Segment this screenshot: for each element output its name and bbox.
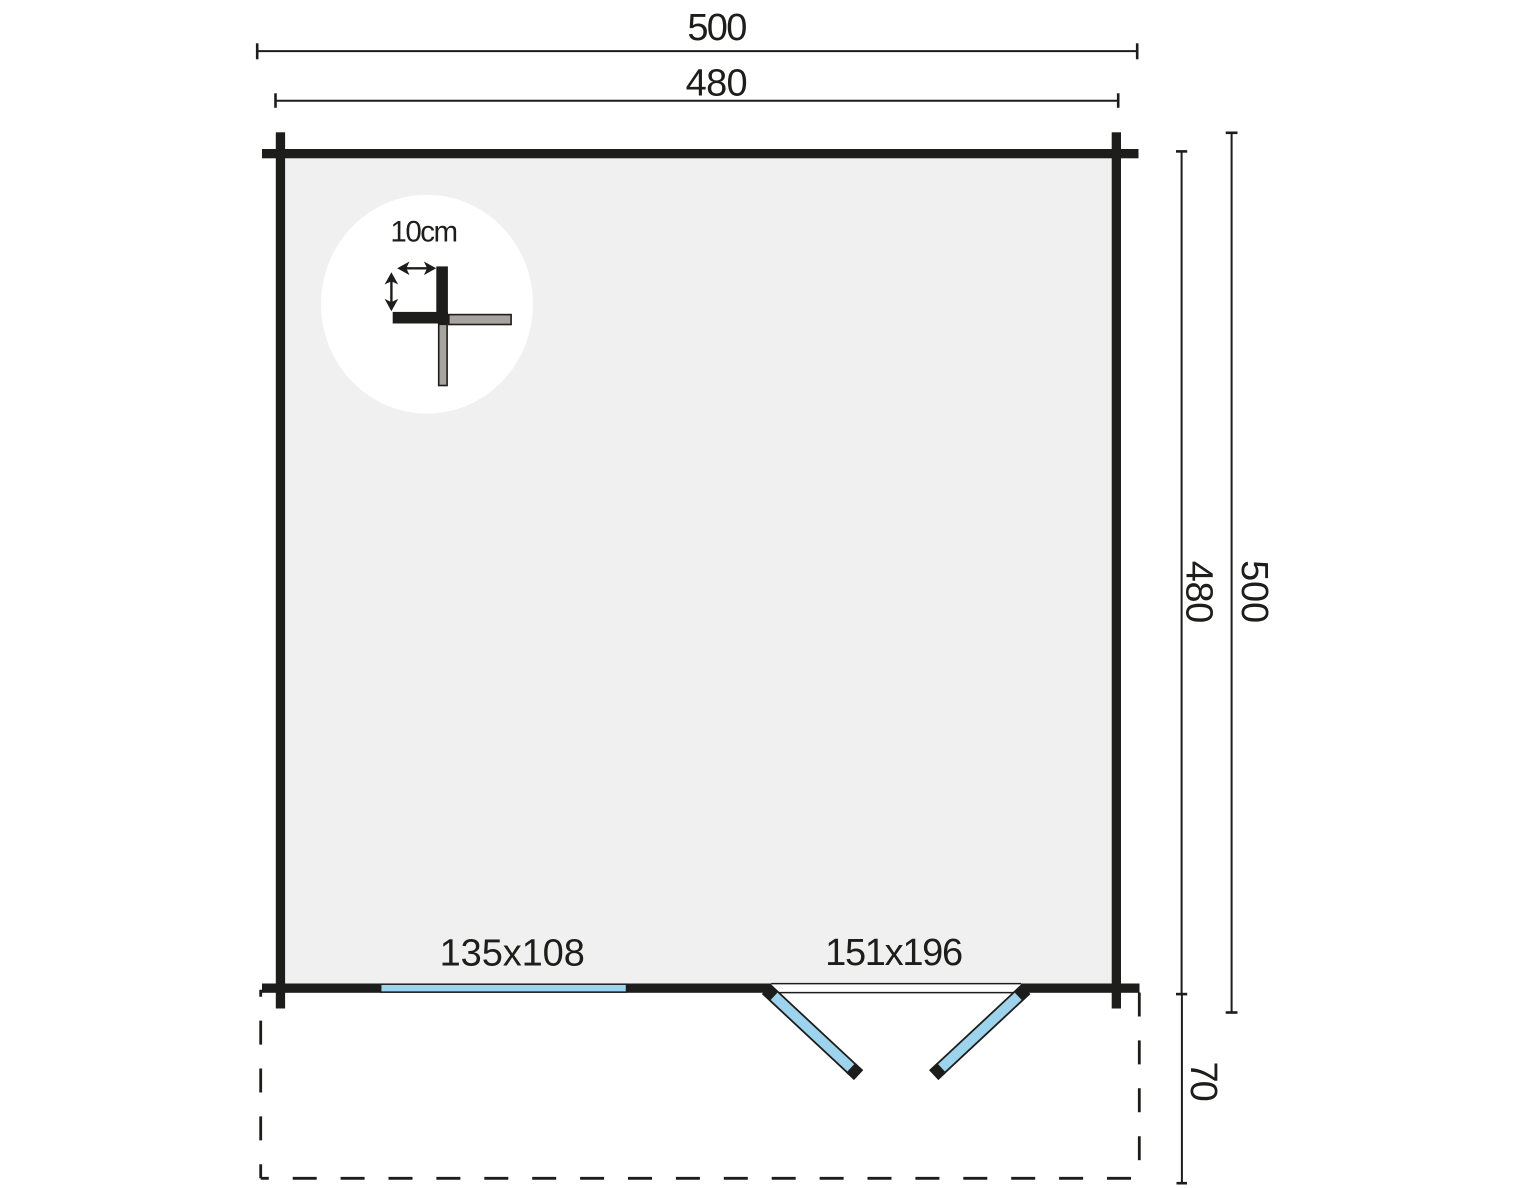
svg-text:135x108: 135x108 [440,933,585,975]
svg-text:151x196: 151x196 [825,932,962,974]
svg-text:500: 500 [1233,560,1275,623]
svg-text:70: 70 [1182,1061,1224,1100]
svg-text:10cm: 10cm [390,216,456,249]
svg-text:480: 480 [1177,561,1219,623]
svg-text:500: 500 [687,7,746,49]
svg-text:480: 480 [686,63,747,105]
